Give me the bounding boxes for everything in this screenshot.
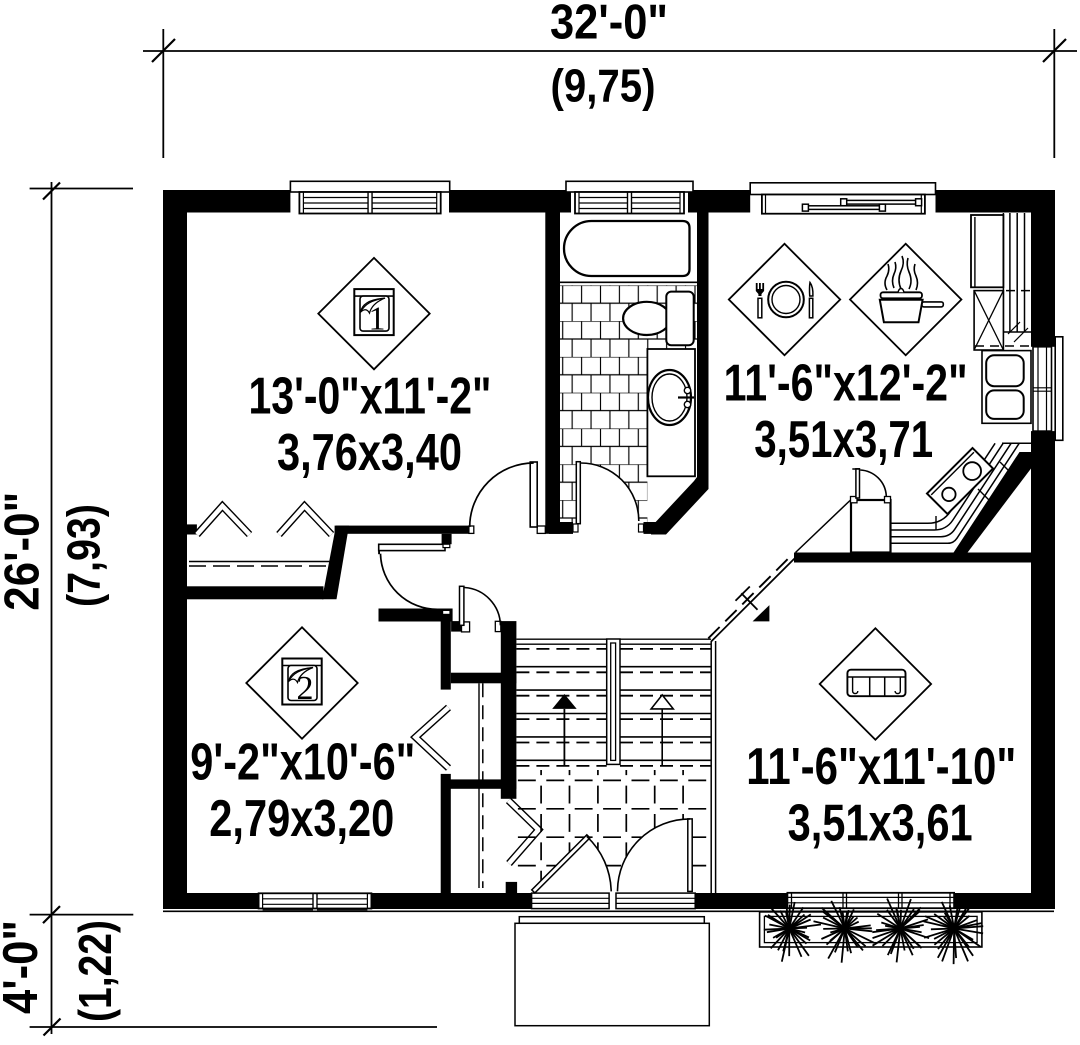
svg-text:13'-0"x11'-2": 13'-0"x11'-2" [249,367,492,425]
svg-text:11'-6"x12'-2": 11'-6"x12'-2" [724,353,968,411]
svg-text:(9,75): (9,75) [551,60,656,112]
svg-text:26'-0": 26'-0" [0,492,50,611]
svg-text:4'-0": 4'-0" [0,920,48,1014]
svg-text:2: 2 [297,670,314,707]
svg-text:32'-0": 32'-0" [550,0,668,49]
svg-text:(1,22): (1,22) [69,920,121,1022]
svg-text:(7,93): (7,93) [58,504,110,607]
svg-text:3,51x3,71: 3,51x3,71 [754,410,933,468]
svg-text:3,51x3,61: 3,51x3,61 [788,794,973,852]
svg-text:1: 1 [369,301,386,338]
svg-text:2,79x3,20: 2,79x3,20 [209,789,394,847]
svg-text:11'-6"x11'-10": 11'-6"x11'-10" [746,737,1016,795]
svg-text:3,76x3,40: 3,76x3,40 [277,423,462,481]
svg-text:9'-2"x10'-6": 9'-2"x10'-6" [190,732,415,790]
